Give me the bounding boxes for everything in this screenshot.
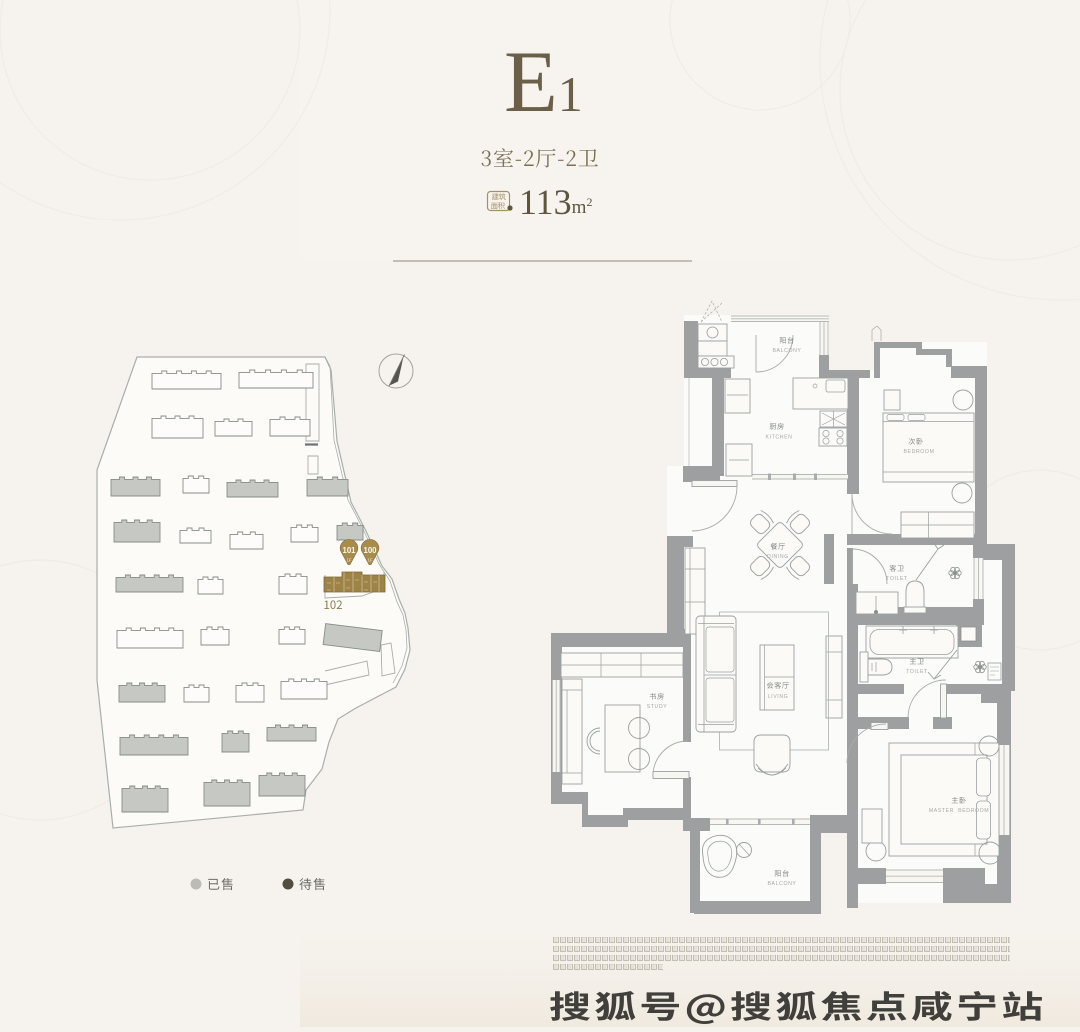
- svg-text:LIVING: LIVING: [768, 694, 789, 700]
- svg-text:BALCONY: BALCONY: [768, 881, 797, 887]
- svg-text:TOILET: TOILET: [886, 576, 908, 582]
- svg-text:100: 100: [363, 546, 377, 555]
- svg-text:1F: 1F: [367, 558, 372, 563]
- svg-text:1F: 1F: [346, 558, 351, 563]
- svg-text:KITCHEN: KITCHEN: [766, 435, 793, 441]
- svg-text:BALCONY: BALCONY: [773, 348, 802, 354]
- svg-text:MASTER BEDROOM: MASTER BEDROOM: [929, 808, 989, 814]
- svg-text:101: 101: [342, 546, 356, 555]
- svg-text:STUDY: STUDY: [647, 704, 668, 710]
- svg-text:BEDROOM: BEDROOM: [903, 449, 934, 455]
- svg-text:DINING: DINING: [767, 554, 789, 560]
- svg-text:TOILET: TOILET: [906, 669, 928, 675]
